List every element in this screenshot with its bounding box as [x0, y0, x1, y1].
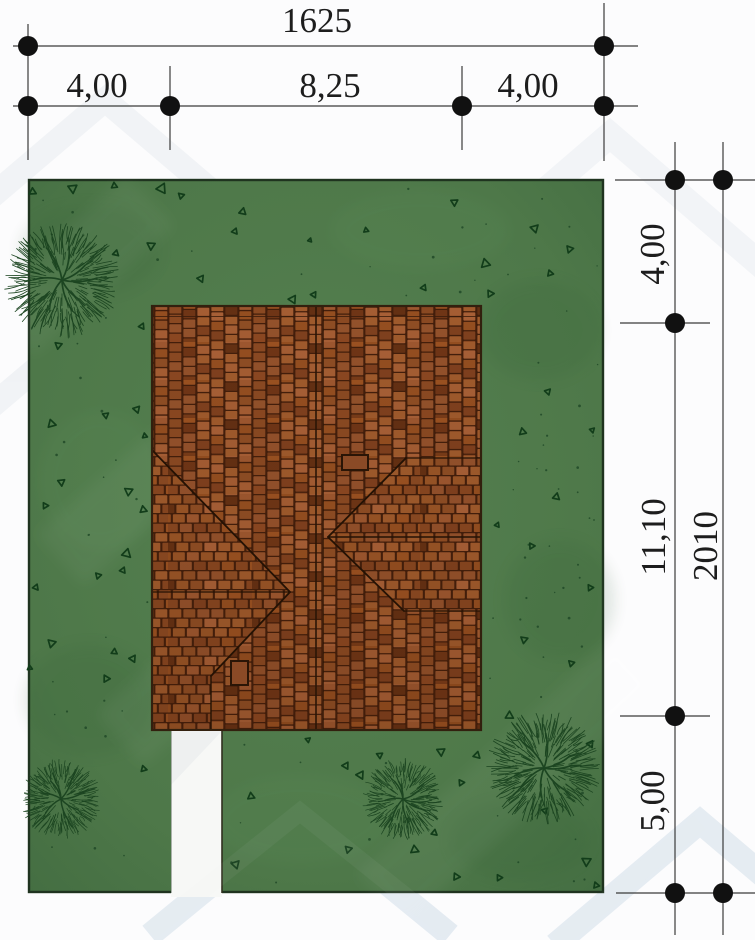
svg-text:8,25: 8,25 — [299, 66, 360, 105]
svg-text:4,00: 4,00 — [497, 66, 558, 105]
svg-text:2010: 2010 — [686, 511, 725, 581]
svg-text:4,00: 4,00 — [66, 66, 127, 105]
svg-text:1625: 1625 — [282, 1, 352, 40]
svg-text:4,00: 4,00 — [633, 223, 672, 284]
svg-text:5,00: 5,00 — [633, 770, 672, 831]
svg-text:11,10: 11,10 — [634, 498, 673, 575]
